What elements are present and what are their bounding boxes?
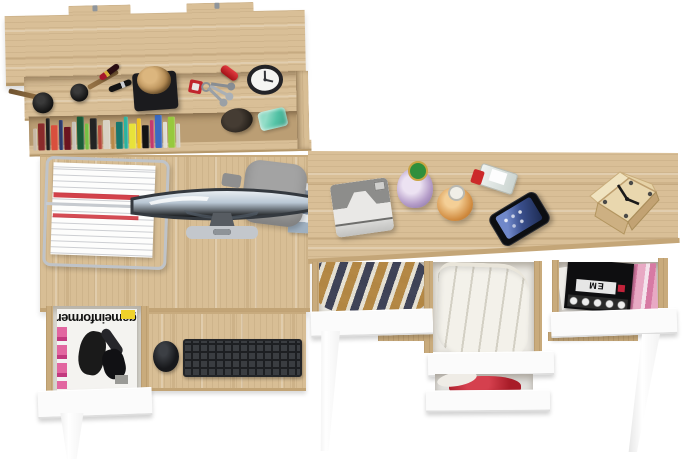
perfume-cap-white — [448, 185, 465, 201]
book-spine — [150, 120, 155, 148]
magazine-drawer: gameinformer — [53, 306, 141, 391]
drawer-side-rail — [46, 306, 53, 392]
plaid-shirt — [319, 262, 424, 312]
magazine-side-strip — [57, 327, 67, 389]
keyboard — [183, 339, 302, 377]
drawer-magazines: EM — [559, 262, 658, 312]
right-desk-leg — [628, 334, 660, 452]
black-magazine-title: EM — [575, 279, 616, 294]
book-spine — [85, 123, 90, 149]
book-spine — [98, 125, 103, 149]
product-render-stage: gameinformer — [0, 0, 700, 460]
magazine-corner-tag — [121, 310, 135, 319]
book-row — [33, 115, 222, 151]
book-spine — [129, 123, 137, 148]
book-spine — [72, 122, 77, 150]
right-desk-leg — [314, 331, 340, 451]
book-spine — [111, 127, 115, 149]
drawer-side-rail — [141, 306, 149, 392]
book-spine — [103, 120, 111, 149]
book-spine — [77, 117, 85, 150]
alarm-clock — [246, 63, 285, 98]
magazine-cover-detail — [115, 375, 128, 384]
book-spine — [124, 117, 129, 149]
black-magazine-label: EM — [576, 279, 617, 292]
black-magazine-accent — [618, 285, 626, 293]
drawer-side-rail — [534, 261, 542, 353]
book-spine — [64, 127, 71, 150]
perfume-cap-green — [408, 161, 428, 181]
book-spine — [142, 125, 149, 148]
cube-clock — [582, 166, 666, 244]
book-spine — [163, 122, 168, 148]
wall-shelf — [4, 1, 309, 159]
instant-camera — [330, 177, 395, 238]
camera-button — [374, 181, 386, 191]
white-trousers — [435, 262, 530, 352]
book-spine — [168, 117, 176, 148]
mount-pin-icon — [214, 3, 219, 9]
mount-pin-icon — [92, 5, 97, 11]
book-spine — [90, 118, 98, 149]
book-spine — [176, 124, 181, 148]
book-spine — [59, 120, 64, 150]
left-desk-drawer-front — [38, 387, 153, 419]
drawer-front — [426, 389, 550, 412]
book-spine — [33, 129, 37, 151]
mouse — [153, 341, 179, 372]
drawer-side-rail — [552, 260, 559, 314]
drawer-plaid-shirt — [319, 262, 424, 312]
gameinformer-magazine: gameinformer — [57, 309, 137, 391]
drawer-white-trousers — [433, 262, 534, 352]
shelf-side-panel — [296, 71, 310, 149]
drawer-front — [551, 308, 678, 338]
book-spine — [137, 118, 142, 148]
book-spine — [51, 125, 59, 150]
book-spine — [155, 115, 163, 148]
book-spine — [46, 118, 51, 150]
left-desk-leg — [55, 413, 85, 459]
curved-monitor — [129, 184, 315, 248]
black-magazine: EM — [564, 262, 634, 312]
book-spine — [38, 123, 46, 150]
drawer-side-rail — [658, 258, 668, 308]
book-spine — [116, 122, 124, 149]
